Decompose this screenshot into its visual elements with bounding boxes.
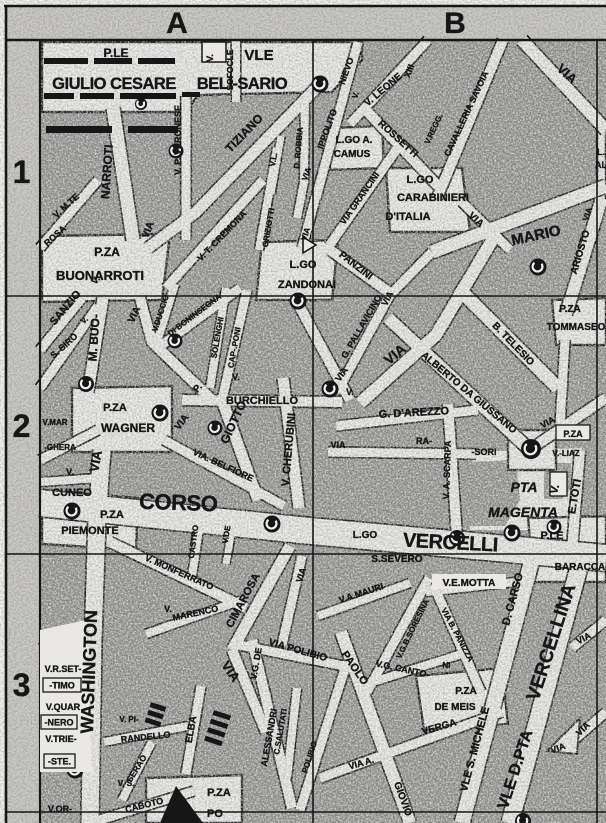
svg-text:S.SEVERO: S.SEVERO <box>371 554 422 565</box>
svg-text:V.: V. <box>66 467 74 477</box>
svg-text:V. P. VERONESE: V. P. VERONESE <box>173 105 183 175</box>
svg-text:VLE: VLE <box>244 47 273 64</box>
svg-text:V.MAR: V.MAR <box>42 418 67 427</box>
svg-text:L.: L. <box>597 147 605 157</box>
svg-text:AL: AL <box>595 160 606 170</box>
svg-text:A: A <box>166 7 188 40</box>
svg-text:RA-: RA- <box>416 436 432 446</box>
svg-text:P.LE: P.LE <box>540 530 563 542</box>
svg-text:L.GO A.: L.GO A. <box>336 135 373 146</box>
svg-text:P.ZA: P.ZA <box>559 304 581 315</box>
svg-text:CORSO: CORSO <box>139 489 218 517</box>
svg-text:P.ZA: P.ZA <box>100 509 124 521</box>
svg-text:L.GO: L.GO <box>290 259 317 271</box>
svg-text:V.: V. <box>205 54 215 62</box>
svg-text:P.ZA: P.ZA <box>103 402 127 414</box>
svg-text:L.GO: L.GO <box>407 174 434 186</box>
svg-text:B: B <box>444 7 466 40</box>
svg-text:P.LE: P.LE <box>103 46 128 60</box>
svg-text:V. A. SCARPA: V. A. SCARPA <box>441 440 453 499</box>
svg-text:-STE.: -STE. <box>48 757 71 767</box>
svg-text:ZANDONAI: ZANDONAI <box>278 279 336 291</box>
svg-text:PTA: PTA <box>511 479 538 495</box>
svg-text:-NERO: -NERO <box>45 718 74 728</box>
svg-text:2: 2 <box>13 408 31 444</box>
svg-text:P.ZA: P.ZA <box>207 787 231 799</box>
svg-text:1: 1 <box>13 154 31 190</box>
svg-text:V.-LIAZ: V.-LIAZ <box>552 449 579 458</box>
svg-text:-SORI: -SORI <box>471 447 496 457</box>
svg-text:P.ZA: P.ZA <box>563 429 583 439</box>
svg-text:L.GO: L.GO <box>353 530 378 541</box>
svg-text:V. PI-: V. PI- <box>119 715 139 724</box>
svg-text:-TIMO: -TIMO <box>49 681 75 691</box>
svg-text:V.E.MOTTA: V.E.MOTTA <box>443 578 496 589</box>
svg-text:VIA: VIA <box>330 440 346 450</box>
svg-text:V.OR-: V.OR- <box>48 804 72 814</box>
svg-text:P.ZA: P.ZA <box>455 686 477 697</box>
svg-text:D'ITALIA: D'ITALIA <box>385 211 430 223</box>
svg-text:SOFOCLE: SOFOCLE <box>225 49 235 90</box>
svg-text:BARACCA: BARACCA <box>555 562 606 573</box>
svg-text:MAGENTA: MAGENTA <box>488 504 558 520</box>
svg-text:-NI: -NI <box>440 661 451 670</box>
svg-text:PIEMONTE: PIEMONTE <box>61 525 118 537</box>
svg-text:WAGNER: WAGNER <box>101 421 155 435</box>
svg-text:CARABINIERI: CARABINIERI <box>397 192 469 204</box>
svg-text:V.R.SET-: V.R.SET- <box>45 664 82 674</box>
svg-text:BELI-SARIO: BELI-SARIO <box>197 75 288 93</box>
svg-text:-GHERA: -GHERA <box>44 443 76 452</box>
svg-text:V.QUAR: V.QUAR <box>46 702 81 712</box>
svg-text:GIULIO CESARE: GIULIO CESARE <box>52 75 176 93</box>
svg-text:PO: PO <box>207 808 223 820</box>
svg-text:CUNEO: CUNEO <box>52 487 92 499</box>
svg-text:CAMUS: CAMUS <box>334 149 371 160</box>
svg-text:P.ZA: P.ZA <box>94 245 120 259</box>
svg-text:TOMMASEO: TOMMASEO <box>547 322 606 333</box>
svg-text:V.: V. <box>346 387 354 397</box>
svg-text:DE MEIS: DE MEIS <box>434 702 475 713</box>
svg-text:V.TRIE-: V.TRIE- <box>45 734 76 744</box>
svg-text:V.: V. <box>232 372 240 382</box>
svg-text:V. S.: V. S. <box>118 779 135 788</box>
svg-text:3: 3 <box>13 667 31 703</box>
